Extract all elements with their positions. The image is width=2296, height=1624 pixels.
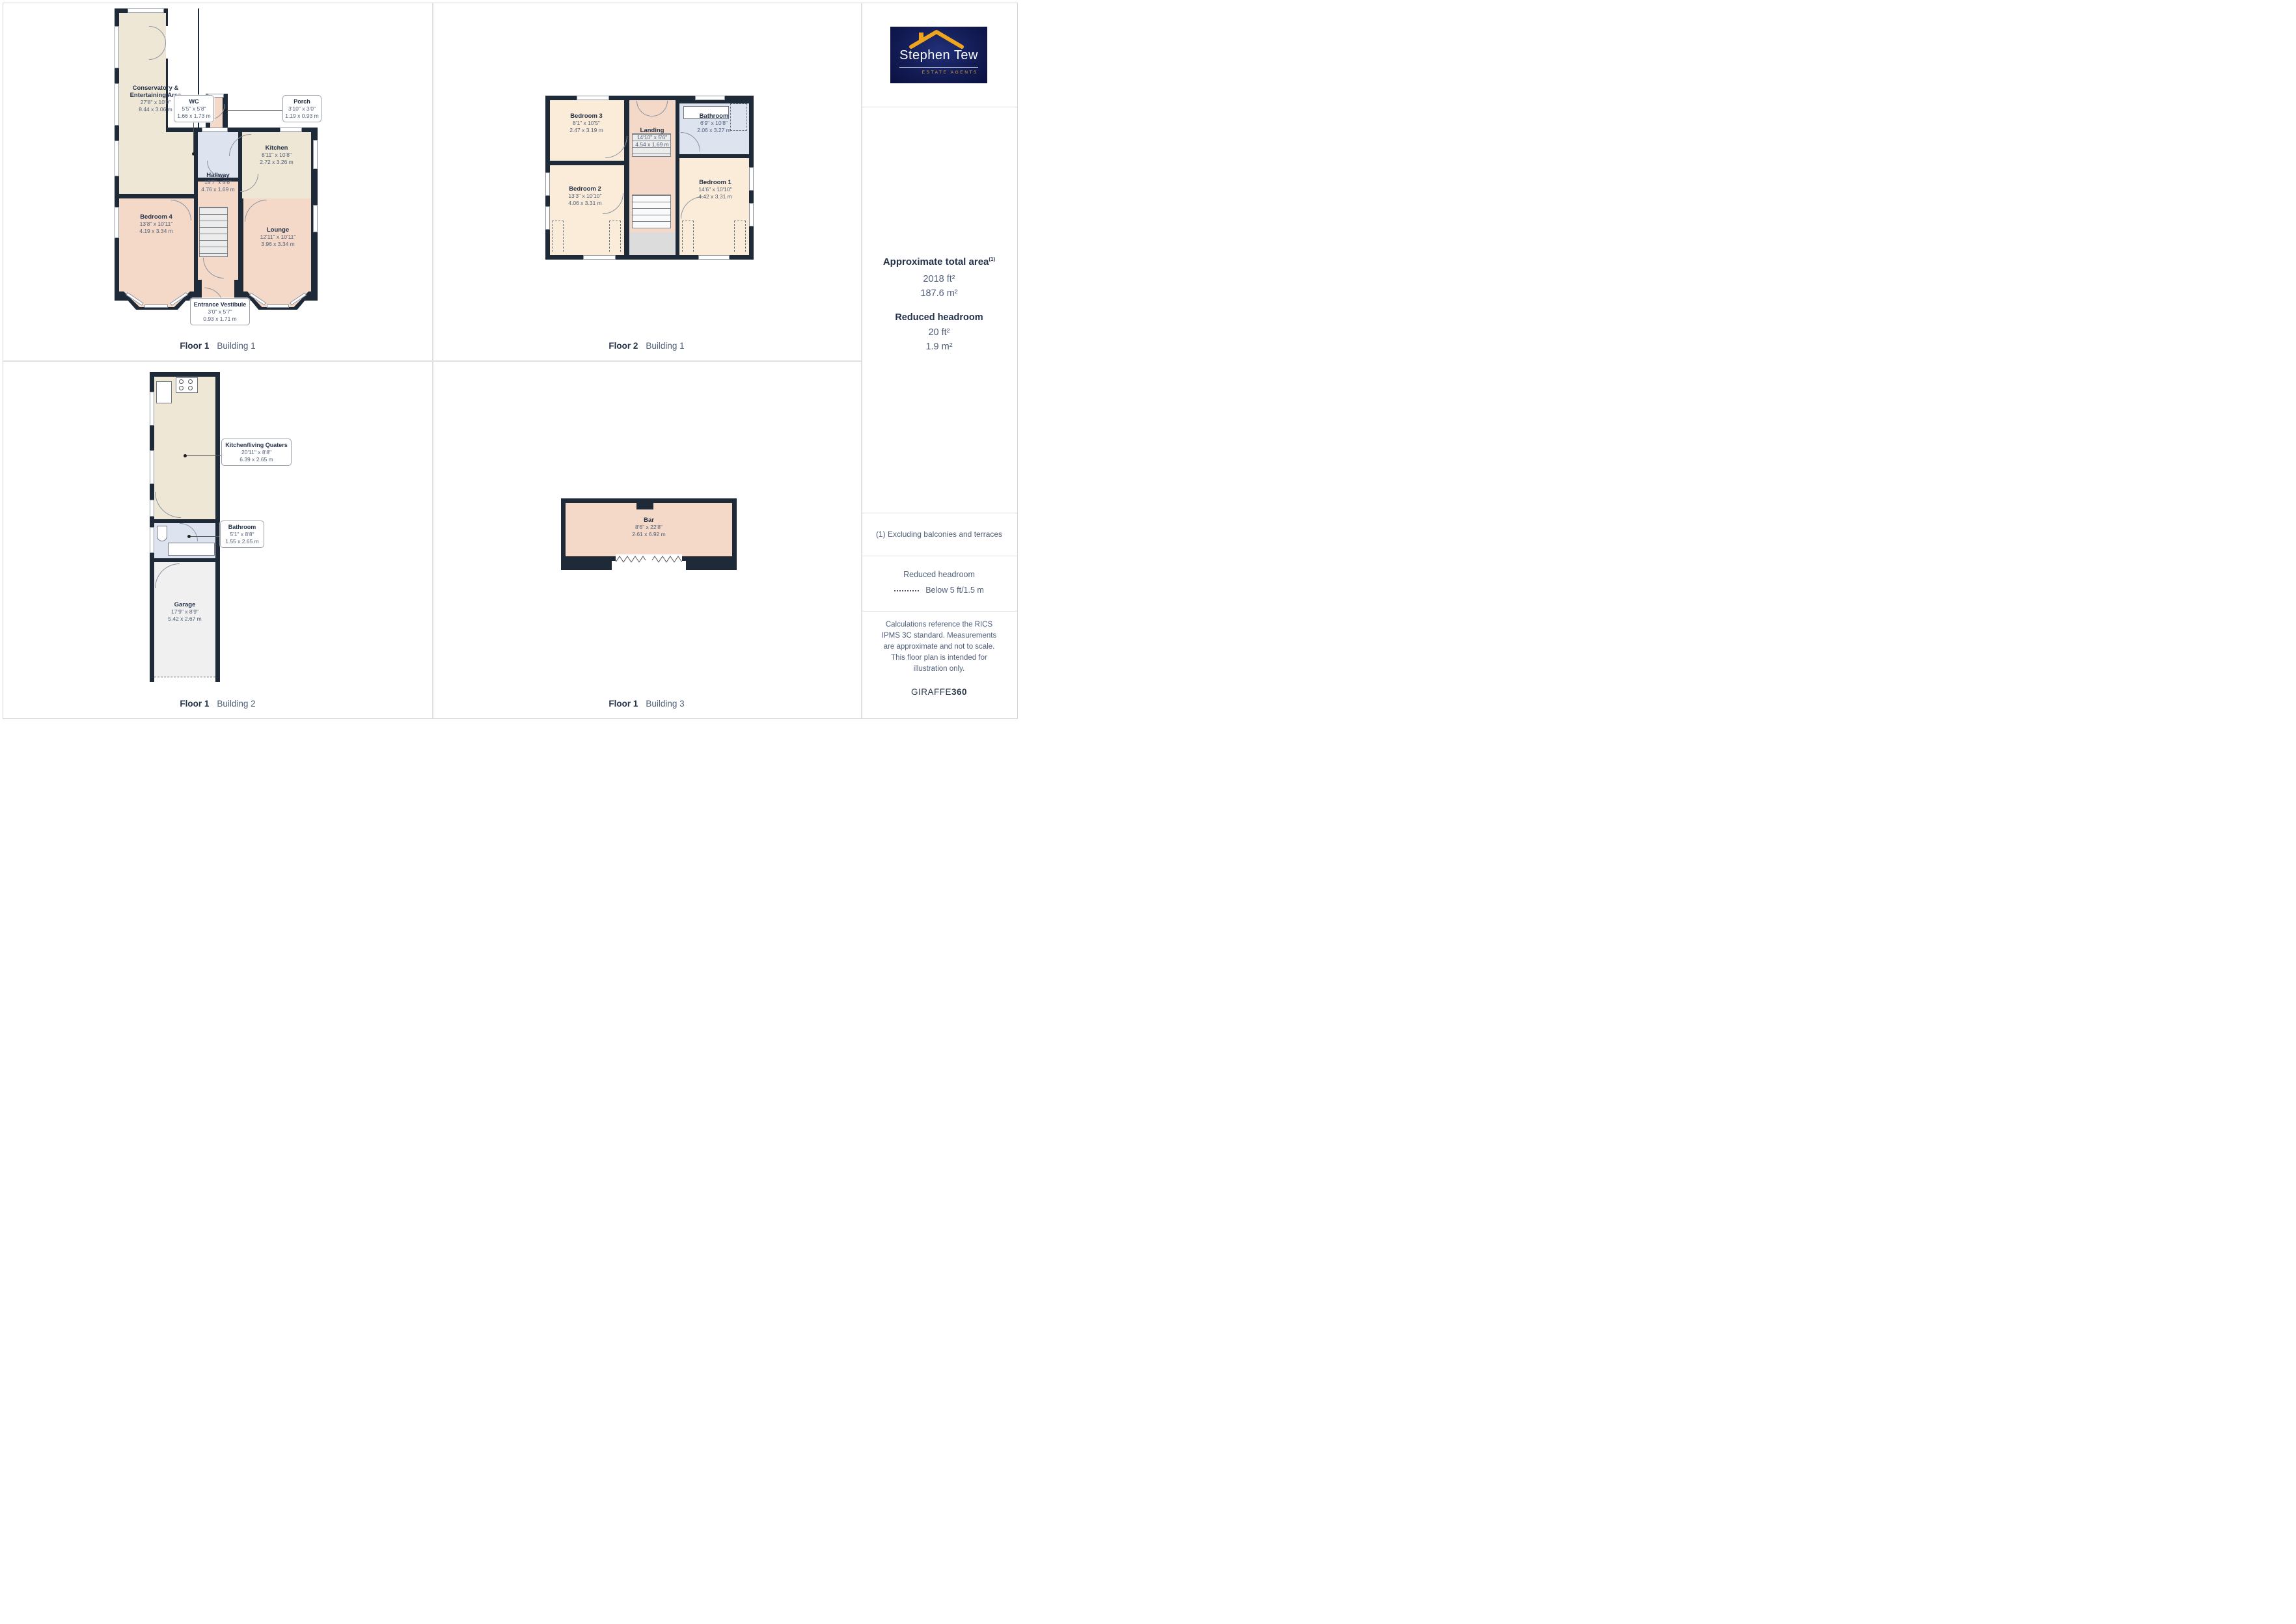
window xyxy=(583,255,616,260)
room-tag-kitchen-living: Kitchen/living Quaters 20'11" x 8'8" 6.3… xyxy=(221,439,292,466)
room-label-bathroom: Bathroom 6'9" x 10'8" 2.06 x 3.27 m xyxy=(678,113,750,134)
dotted-line-icon xyxy=(894,590,919,591)
window xyxy=(267,304,289,308)
leader-dot xyxy=(224,109,227,112)
leader-line xyxy=(193,122,194,154)
window xyxy=(577,96,609,100)
window xyxy=(150,527,154,553)
grid-divider-horizontal xyxy=(3,360,861,362)
window xyxy=(749,203,754,226)
caption-floor1-building3: Floor 1Building 3 xyxy=(432,699,861,709)
reduced-headroom-zone xyxy=(682,221,694,252)
sidebar-divider-1 xyxy=(862,107,1017,107)
window xyxy=(280,128,302,132)
floorplan-floor1-building1: Conservatory & Entertaining Area 27'8" x… xyxy=(115,8,320,331)
total-area-ft: 2018 ft² xyxy=(861,274,1017,284)
window xyxy=(150,392,154,426)
stove-burner xyxy=(188,386,193,390)
floorplan-floor2-building1: Bedroom 3 8'1" x 10'5" 2.47 x 3.19 m Lan… xyxy=(545,96,755,262)
leader-line xyxy=(191,536,220,537)
total-area-m: 187.6 m² xyxy=(861,288,1017,299)
sidebar-divider-4 xyxy=(862,611,1017,612)
window xyxy=(115,83,119,126)
window xyxy=(115,207,119,238)
reduced-headroom-zone xyxy=(609,221,621,252)
sidebar-divider-3 xyxy=(862,556,1017,556)
bathtub xyxy=(168,543,215,556)
window xyxy=(698,255,730,260)
sink xyxy=(156,381,172,403)
room-tag-bathroom: Bathroom 5'1" x 8'8" 1.55 x 2.65 m xyxy=(220,521,264,548)
logo-name: Stephen Tew xyxy=(890,48,987,63)
staircase xyxy=(632,195,671,228)
wall xyxy=(686,556,737,570)
reduced-headroom-m: 1.9 m² xyxy=(861,342,1017,352)
floorplan-floor1-building2: Kitchen/living Quaters 20'11" x 8'8" 6.3… xyxy=(150,372,293,683)
room-tag-porch: Porch 3'10" x 3'0" 1.19 x 0.93 m xyxy=(282,95,321,122)
room-label-kitchen: Kitchen 8'11" x 10'8" 2.72 x 3.26 m xyxy=(242,144,311,166)
legend-label: Below 5 ft/1.5 m xyxy=(925,586,984,595)
logo-divider xyxy=(899,67,978,68)
window xyxy=(695,96,725,100)
leader-line xyxy=(227,110,282,111)
caption-floor1-building2: Floor 1Building 2 xyxy=(3,699,432,709)
room-tag-wc: WC 5'5" x 5'8" 1.66 x 1.73 m xyxy=(174,95,214,122)
window xyxy=(144,304,168,308)
reduced-headroom-title: Reduced headroom xyxy=(861,312,1017,323)
room-label-bedroom4: Bedroom 4 13'8" x 10'11" 4.19 x 3.34 m xyxy=(120,213,193,235)
door-opening xyxy=(166,26,171,59)
room-label-hallway: Hallway 15'7" x 5'6" 4.76 x 1.69 m xyxy=(183,172,253,193)
disclaimer-text: Calculations reference the RICS IPMS 3C … xyxy=(877,619,1002,675)
footnote-marker: (1) xyxy=(989,256,995,262)
stove-burner xyxy=(179,386,184,390)
window xyxy=(313,205,318,232)
leader-line xyxy=(187,455,221,456)
room-tag-entrance-vestibule: Entrance Vestibule 3'0" x 5'7" 0.93 x 1.… xyxy=(190,298,250,325)
room-label-bedroom2: Bedroom 2 13'3" x 10'10" 4.06 x 3.31 m xyxy=(549,185,622,207)
legend-title: Reduced headroom xyxy=(861,570,1017,579)
floorplan-sheet: { "palette": { "wall": "#1f2a38", "room_… xyxy=(0,0,1020,722)
stairwell-void xyxy=(629,232,676,255)
window xyxy=(115,141,119,176)
room-label-bar: Bar 8'6" x 22'8" 2.61 x 6.92 m xyxy=(614,517,683,538)
stove-burner xyxy=(179,379,184,384)
sidebar-divider-2 xyxy=(862,513,1017,513)
window xyxy=(150,500,154,517)
caption-floor1-building1: Floor 1Building 1 xyxy=(3,341,432,351)
stephen-tew-logo: Stephen Tew ESTATE AGENTS xyxy=(890,27,987,83)
window xyxy=(545,206,550,230)
window xyxy=(150,450,154,484)
giraffe360-brand: GIRAFFE360 xyxy=(861,687,1017,697)
room-label-bedroom3: Bedroom 3 8'1" x 10'5" 2.47 x 3.19 m xyxy=(551,113,622,134)
total-area-title: Approximate total area(1) xyxy=(861,256,1017,267)
window xyxy=(128,8,164,13)
toilet xyxy=(157,526,167,541)
legend-row: Below 5 ft/1.5 m xyxy=(861,586,1017,595)
window xyxy=(202,128,228,132)
caption-floor2-building1: Floor 2Building 1 xyxy=(432,341,861,351)
zigzag-hatch xyxy=(616,554,682,563)
room-label-garage: Garage 17'9" x 8'9" 5.42 x 2.67 m xyxy=(156,601,213,623)
footnote-excluding-balconies: (1) Excluding balconies and terraces xyxy=(861,530,1017,539)
stove-burner xyxy=(188,379,193,384)
staircase xyxy=(199,207,228,257)
room-label-lounge: Lounge 12'11" x 10'11" 3.96 x 3.34 m xyxy=(243,226,312,248)
reduced-headroom-opening xyxy=(616,554,682,563)
leader-dot xyxy=(192,152,195,156)
garage-door-opening xyxy=(154,677,215,682)
window xyxy=(115,26,119,68)
room-label-bedroom1: Bedroom 1 14'6" x 10'10" 4.42 x 3.31 m xyxy=(680,179,750,200)
reduced-headroom-zone xyxy=(552,221,564,252)
window xyxy=(313,140,318,169)
logo-tagline: ESTATE AGENTS xyxy=(890,70,978,75)
reduced-headroom-zone xyxy=(734,221,746,252)
reduced-headroom-ft: 20 ft² xyxy=(861,327,1017,338)
wall-notch xyxy=(636,503,653,509)
floorplan-floor1-building3: Bar 8'6" x 22'8" 2.61 x 6.92 m xyxy=(561,498,741,579)
wall xyxy=(561,556,612,570)
